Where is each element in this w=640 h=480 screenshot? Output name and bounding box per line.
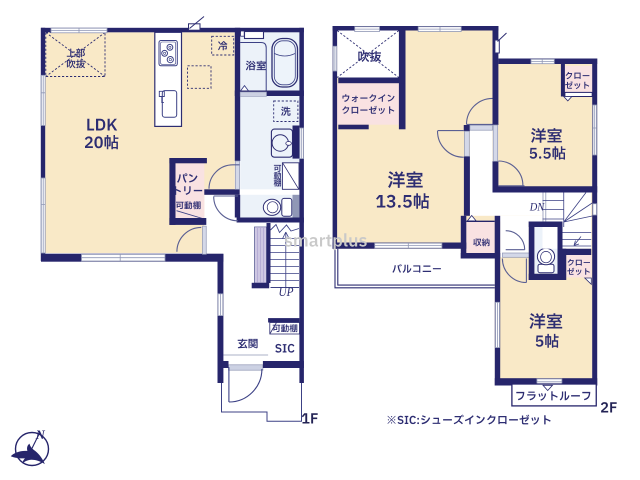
svg-text:N: N bbox=[35, 428, 46, 442]
svg-text:DN: DN bbox=[529, 200, 545, 214]
svg-text:UP: UP bbox=[279, 285, 294, 299]
